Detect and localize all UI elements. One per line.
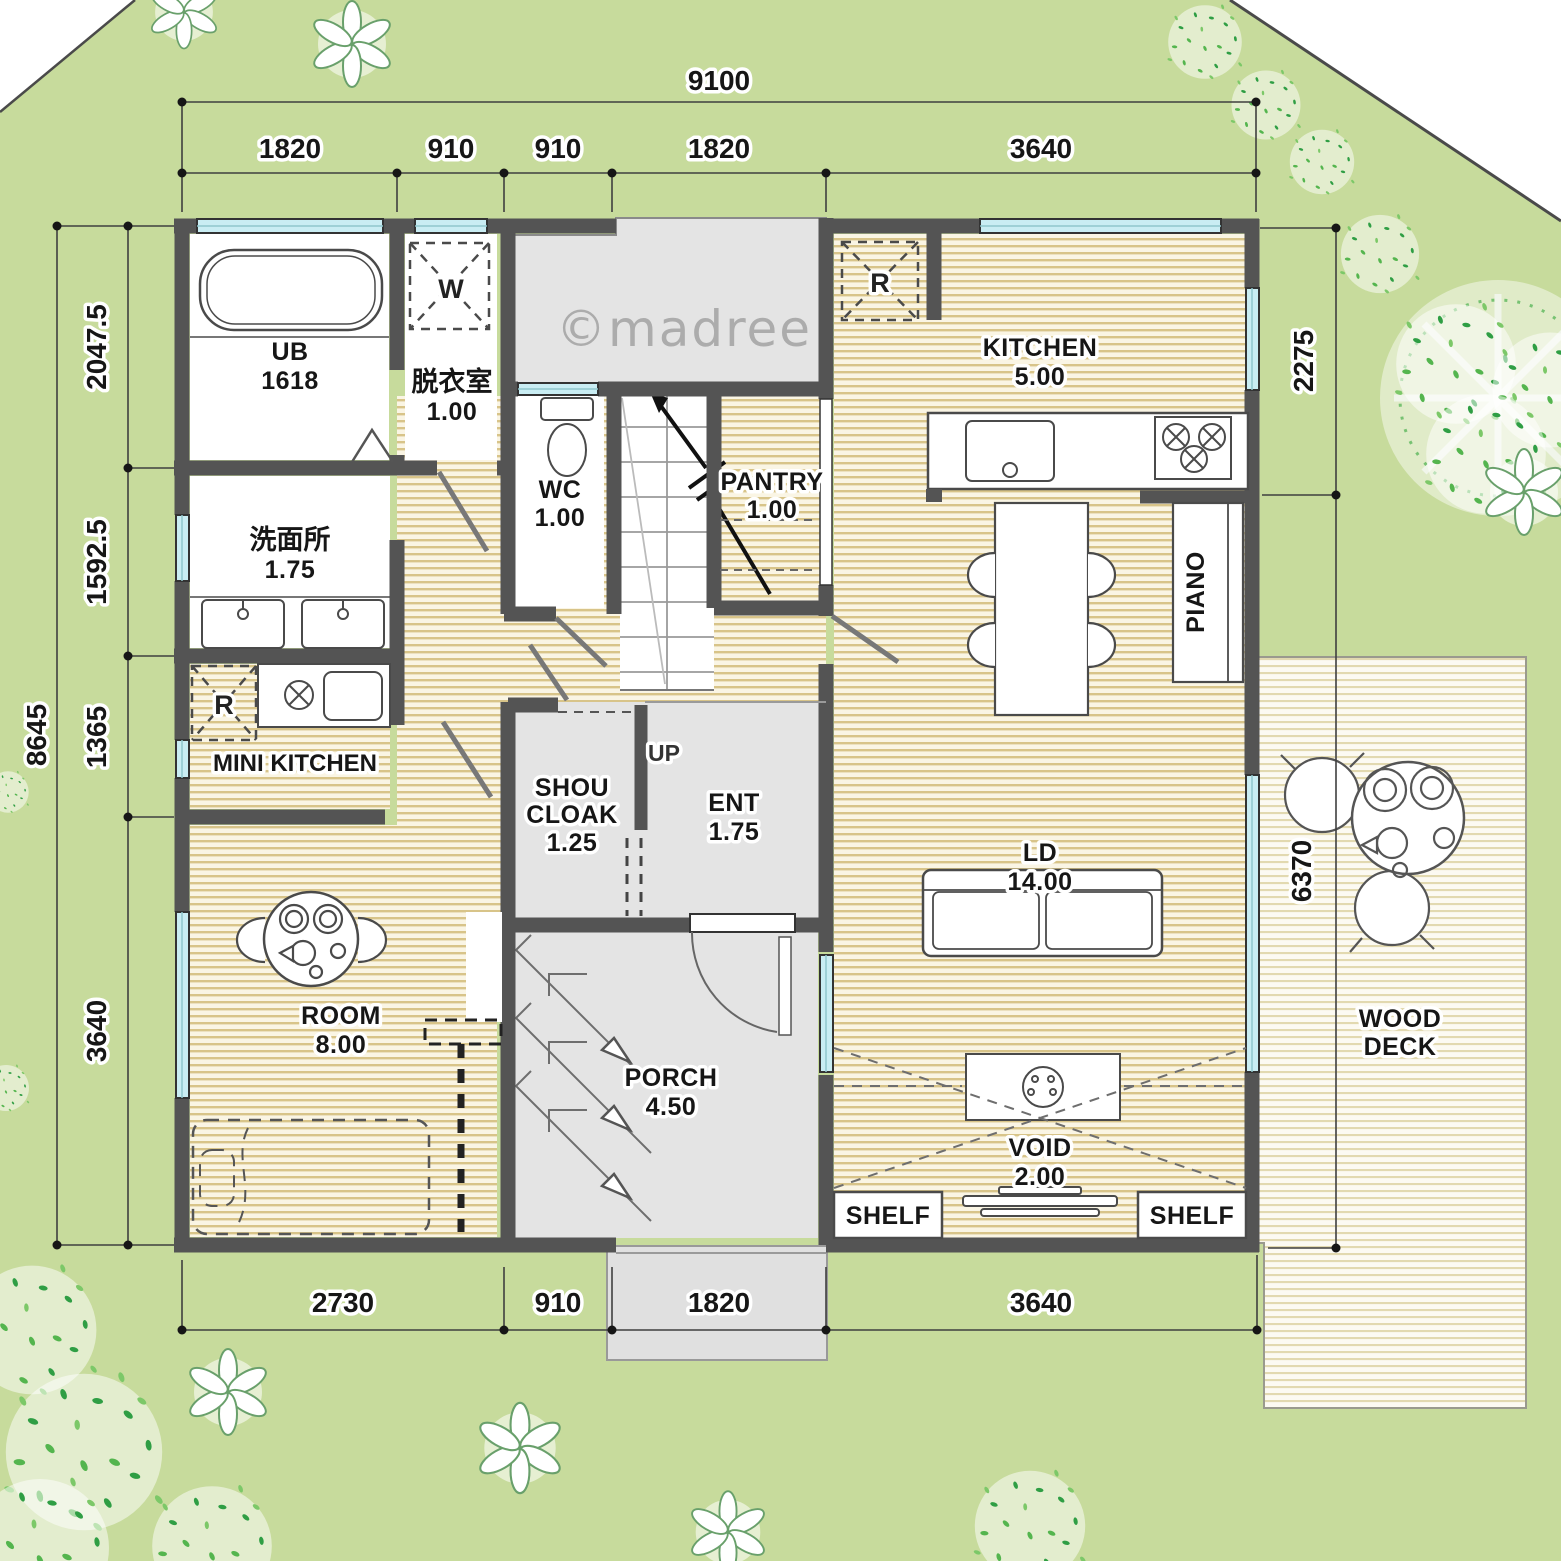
label-washer: W	[438, 274, 464, 304]
watermark: ©madree	[556, 300, 812, 358]
label-shoucloak-size: 1.25	[547, 829, 598, 857]
dim-top-5: 3640	[1010, 133, 1072, 164]
dim-bottom-3: 1820	[688, 1287, 750, 1318]
label-wc: WC	[539, 476, 582, 504]
entrance-door	[690, 914, 795, 932]
label-wood-deck-2: DECK	[1364, 1033, 1437, 1061]
label-up: UP	[648, 740, 680, 766]
label-void: VOID	[1008, 1134, 1071, 1162]
label-kitchen-size: 5.00	[1015, 363, 1066, 391]
label-room-size: 8.00	[316, 1031, 367, 1059]
label-wood-deck-1: WOOD	[1359, 1005, 1442, 1033]
label-ub-size: 1618	[261, 367, 319, 395]
label-pantry: PANTRY	[721, 468, 824, 496]
entrance-door-open-leaf	[779, 937, 791, 1035]
dim-right-2: 6370	[1286, 840, 1317, 902]
dim-top-2: 910	[428, 133, 475, 164]
label-fridge-mini: R	[214, 690, 234, 720]
floor-plan-screenshot: 9100 1820 910 910 1820 3640 8645 2047.5 …	[0, 0, 1561, 1561]
label-senmen: 洗面所	[250, 525, 331, 556]
label-ld: LD	[1023, 839, 1057, 867]
dim-bottom-4: 3640	[1010, 1287, 1072, 1318]
label-ent: ENT	[708, 789, 760, 817]
floor-datsui	[405, 234, 497, 460]
label-datsui: 脱衣室	[412, 366, 493, 398]
mini-kitchen-counter	[258, 664, 390, 727]
label-room: ROOM	[301, 1002, 381, 1030]
label-porch: PORCH	[625, 1064, 718, 1092]
dim-bottom-2: 910	[535, 1287, 582, 1318]
kitchen-counter	[926, 413, 1248, 502]
dim-left-total: 8645	[21, 704, 52, 766]
dim-bottom-1: 2730	[312, 1287, 374, 1318]
label-shelf-left: SHELF	[846, 1202, 930, 1230]
label-fridge: R	[870, 268, 890, 298]
dim-top-3: 910	[535, 133, 582, 164]
label-mini-kitchen: MINI KITCHEN	[213, 750, 377, 777]
dim-left-1: 2047.5	[81, 304, 112, 390]
tv-board	[966, 1054, 1120, 1120]
dim-left-4: 3640	[81, 1000, 112, 1062]
label-void-size: 2.00	[1015, 1163, 1066, 1191]
dim-top-4: 1820	[688, 133, 750, 164]
label-senmen-size: 1.75	[265, 556, 316, 584]
label-porch-size: 4.50	[646, 1093, 697, 1121]
label-shoucloak-2: CLOAK	[526, 801, 617, 829]
label-piano: PIANO	[1182, 551, 1210, 633]
label-ub: UB	[271, 338, 308, 366]
closet	[466, 912, 502, 1022]
label-kitchen: KITCHEN	[983, 334, 1098, 362]
dim-left-3: 1365	[81, 706, 112, 768]
dim-top-total: 9100	[688, 65, 750, 96]
floor-plan-canvas: 9100 1820 910 910 1820 3640 8645 2047.5 …	[0, 0, 1561, 1561]
label-ent-size: 1.75	[709, 818, 760, 846]
dim-left-2: 1592.5	[81, 519, 112, 605]
label-pantry-size: 1.00	[747, 496, 798, 524]
dim-right-1: 2275	[1288, 330, 1319, 392]
label-ld-size: 14.00	[1007, 868, 1072, 896]
label-shelf-right: SHELF	[1150, 1202, 1234, 1230]
label-shoucloak-1: SHOU	[535, 774, 609, 802]
label-datsui-size: 1.00	[427, 398, 478, 426]
dim-top-1: 1820	[259, 133, 321, 164]
label-wc-size: 1.00	[535, 504, 586, 532]
